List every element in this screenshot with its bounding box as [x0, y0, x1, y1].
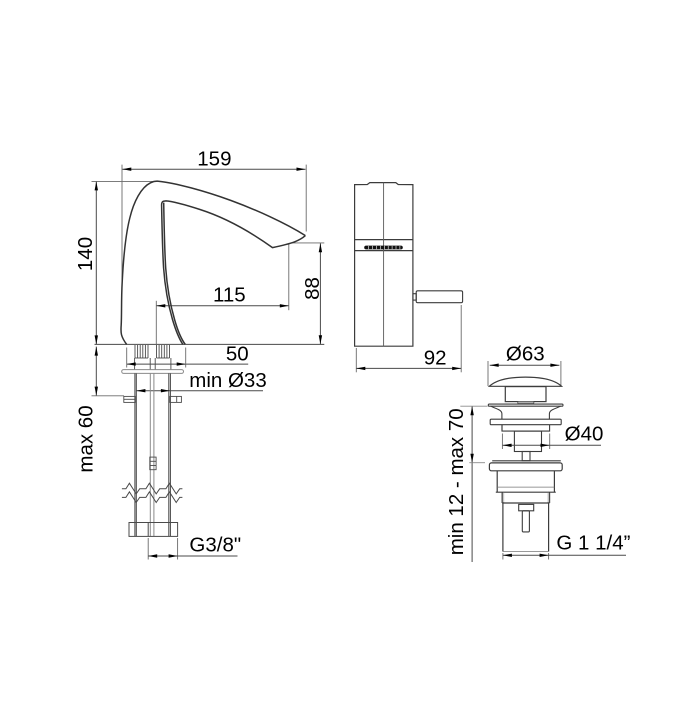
svg-text:Ø40: Ø40: [565, 423, 604, 446]
svg-text:Ø63: Ø63: [506, 342, 545, 365]
svg-text:92: 92: [424, 346, 447, 369]
svg-text:50: 50: [226, 343, 249, 366]
svg-text:G3/8": G3/8": [189, 534, 241, 557]
svg-text:G 1 1/4”: G 1 1/4”: [556, 532, 630, 555]
svg-text:140: 140: [74, 237, 97, 271]
svg-text:max 60: max 60: [75, 405, 98, 472]
svg-text:88: 88: [301, 277, 324, 300]
svg-text:min Ø33: min Ø33: [189, 369, 266, 392]
svg-text:159: 159: [197, 147, 231, 170]
svg-text:min 12 - max 70: min 12 - max 70: [445, 408, 468, 555]
svg-text:115: 115: [213, 284, 246, 307]
